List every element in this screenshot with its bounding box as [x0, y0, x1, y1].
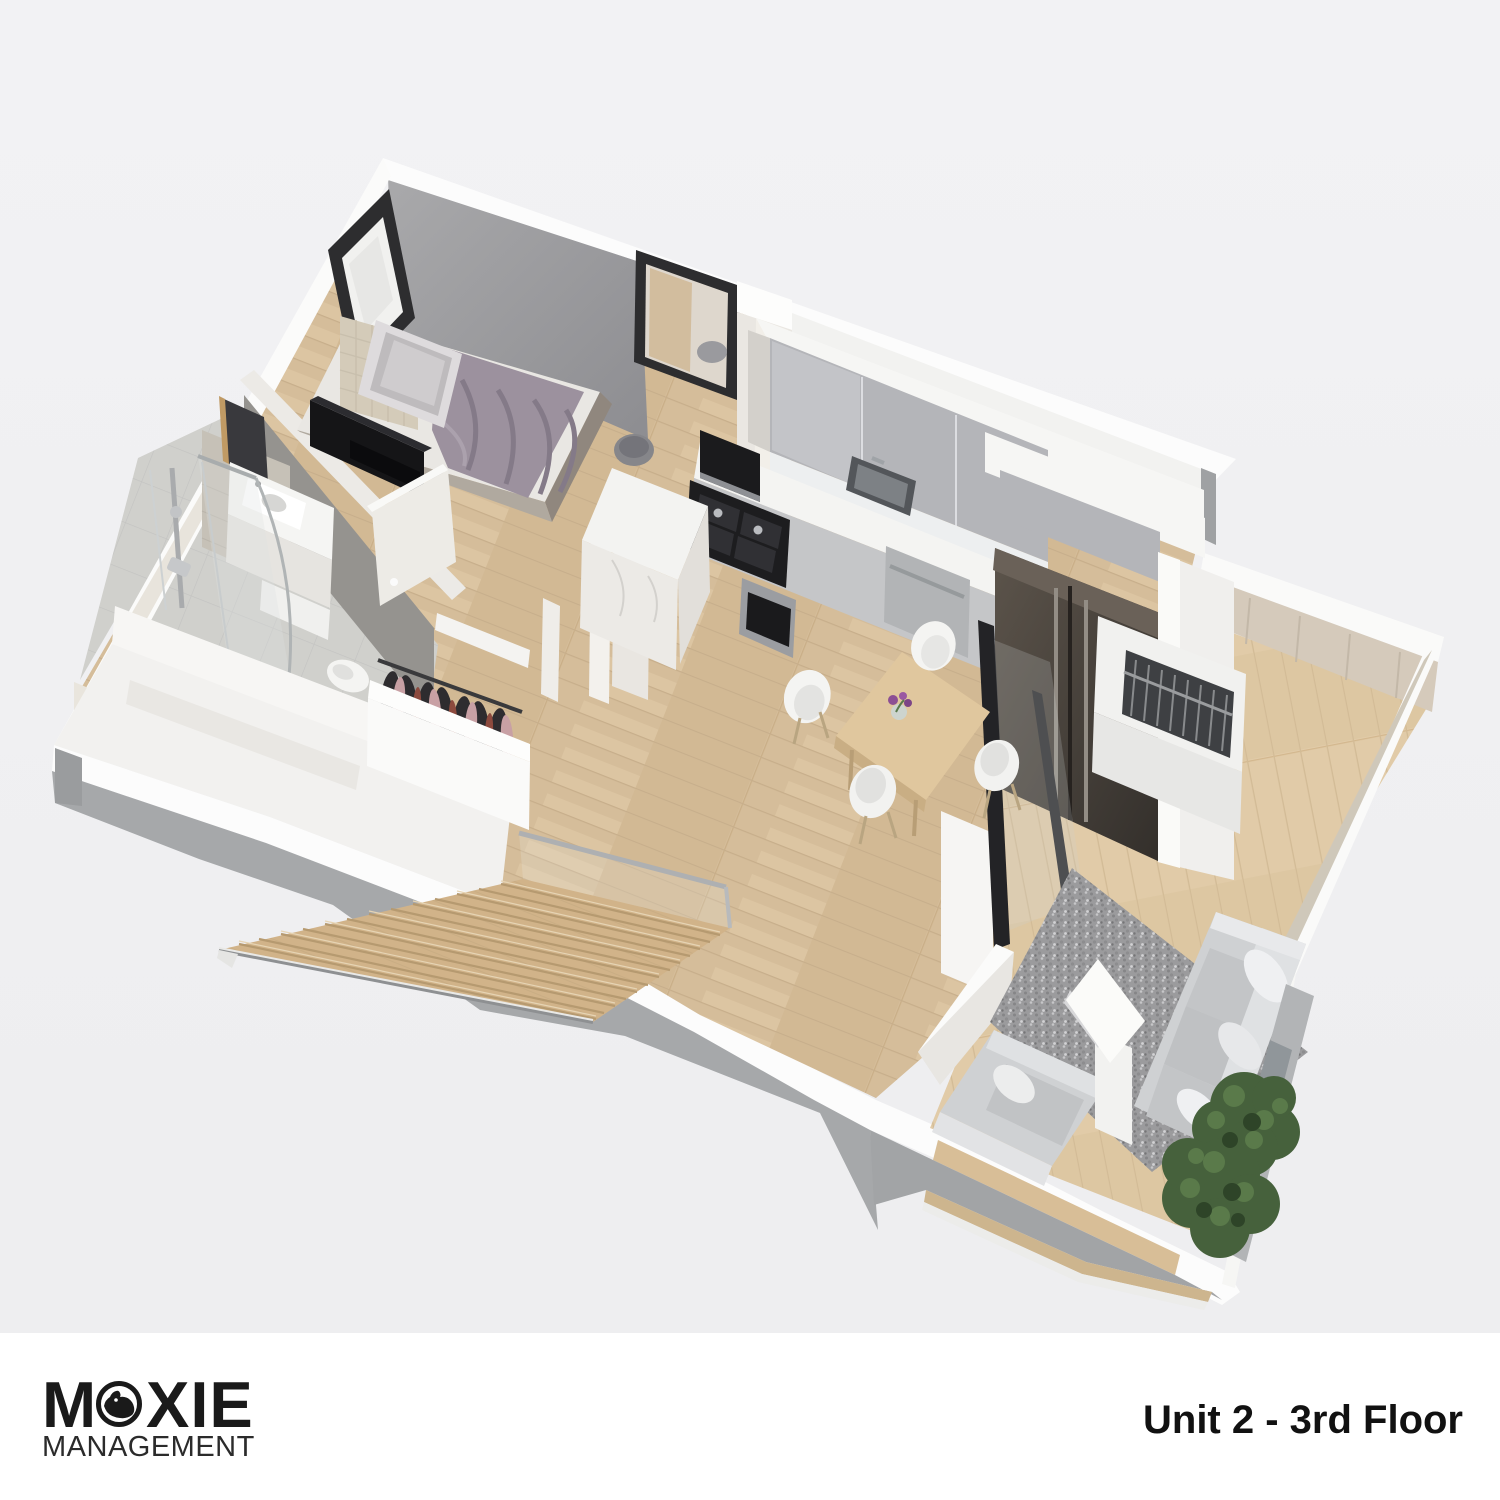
svg-text:MANAGEMENT: MANAGEMENT	[42, 1431, 255, 1463]
svg-text:Unit 2 - 3rd Floor: Unit 2 - 3rd Floor	[1143, 1398, 1463, 1442]
